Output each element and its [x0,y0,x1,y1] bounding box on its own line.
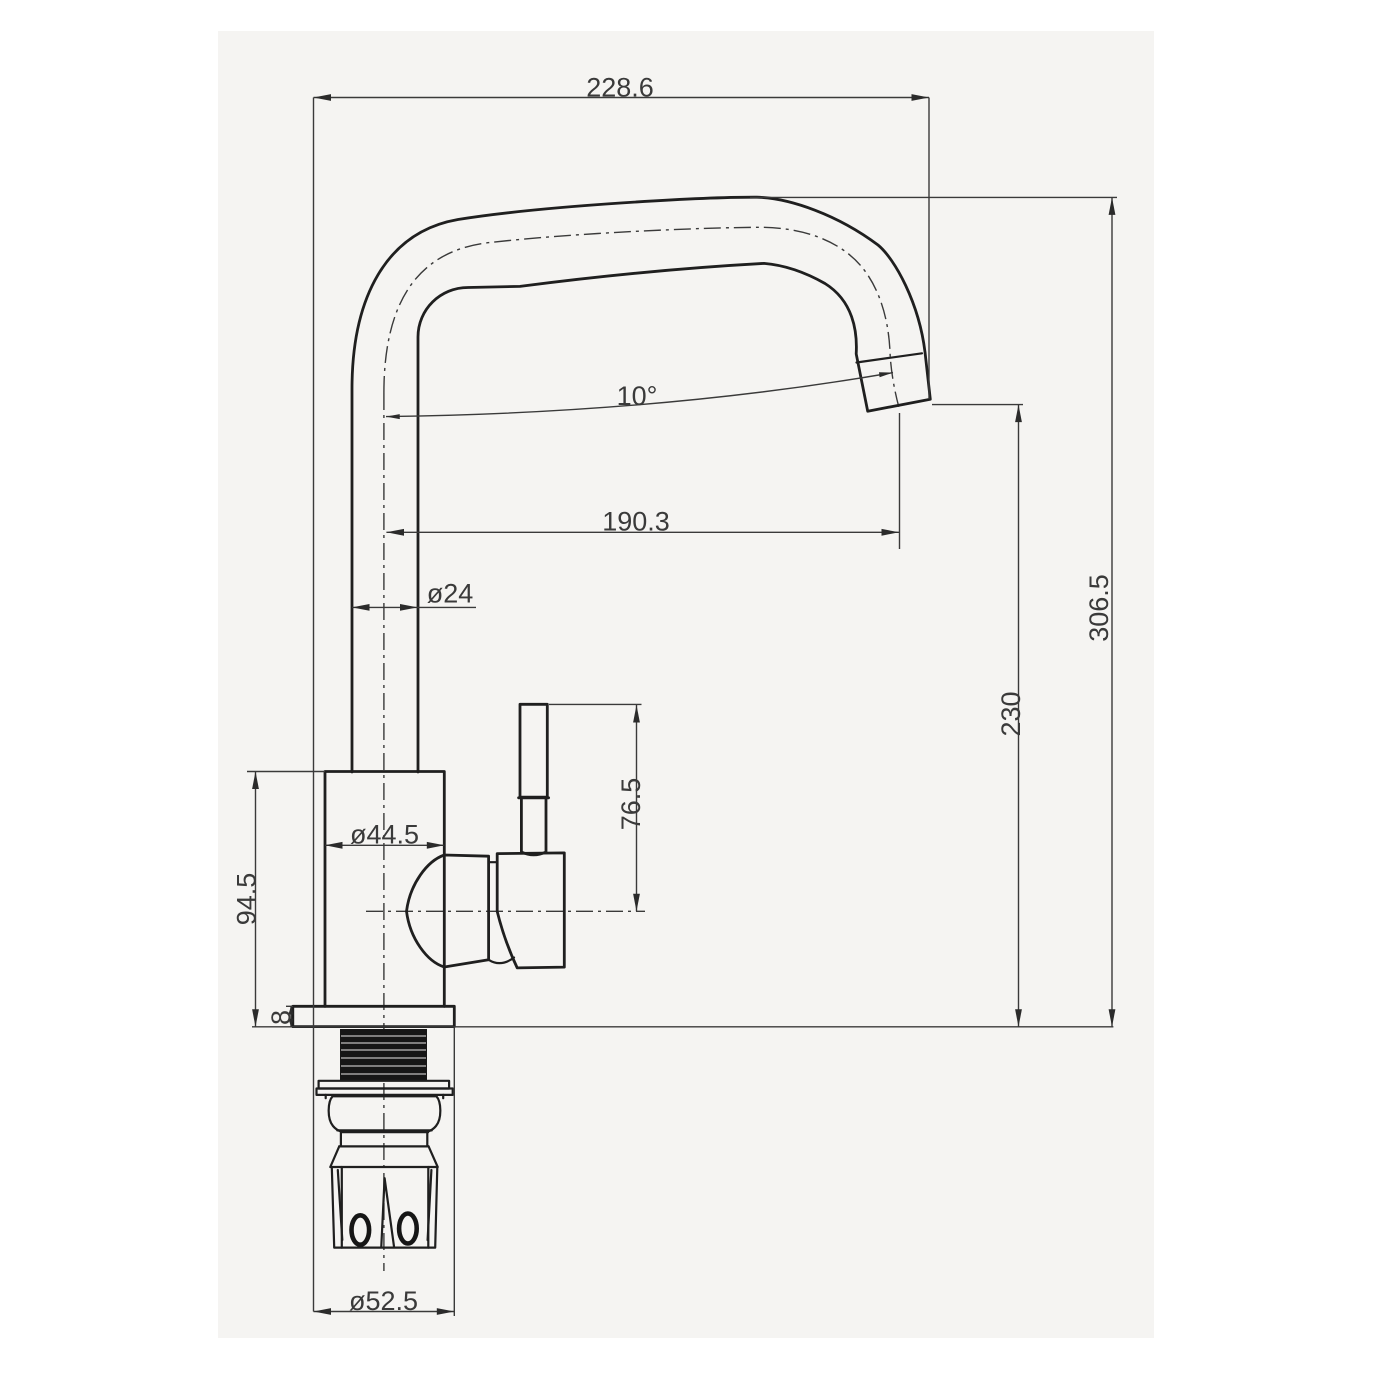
svg-text:94.5: 94.5 [232,873,262,926]
svg-text:ø24: ø24 [427,579,474,609]
svg-text:ø44.5: ø44.5 [350,820,419,850]
svg-text:306.5: 306.5 [1084,574,1114,642]
svg-text:8: 8 [266,1010,296,1025]
svg-text:76.5: 76.5 [616,778,646,831]
svg-text:190.3: 190.3 [602,507,670,537]
svg-text:10°: 10° [617,381,658,411]
svg-text:ø52.5: ø52.5 [349,1286,418,1316]
svg-text:230: 230 [996,691,1026,736]
svg-text:228.6: 228.6 [586,73,654,103]
